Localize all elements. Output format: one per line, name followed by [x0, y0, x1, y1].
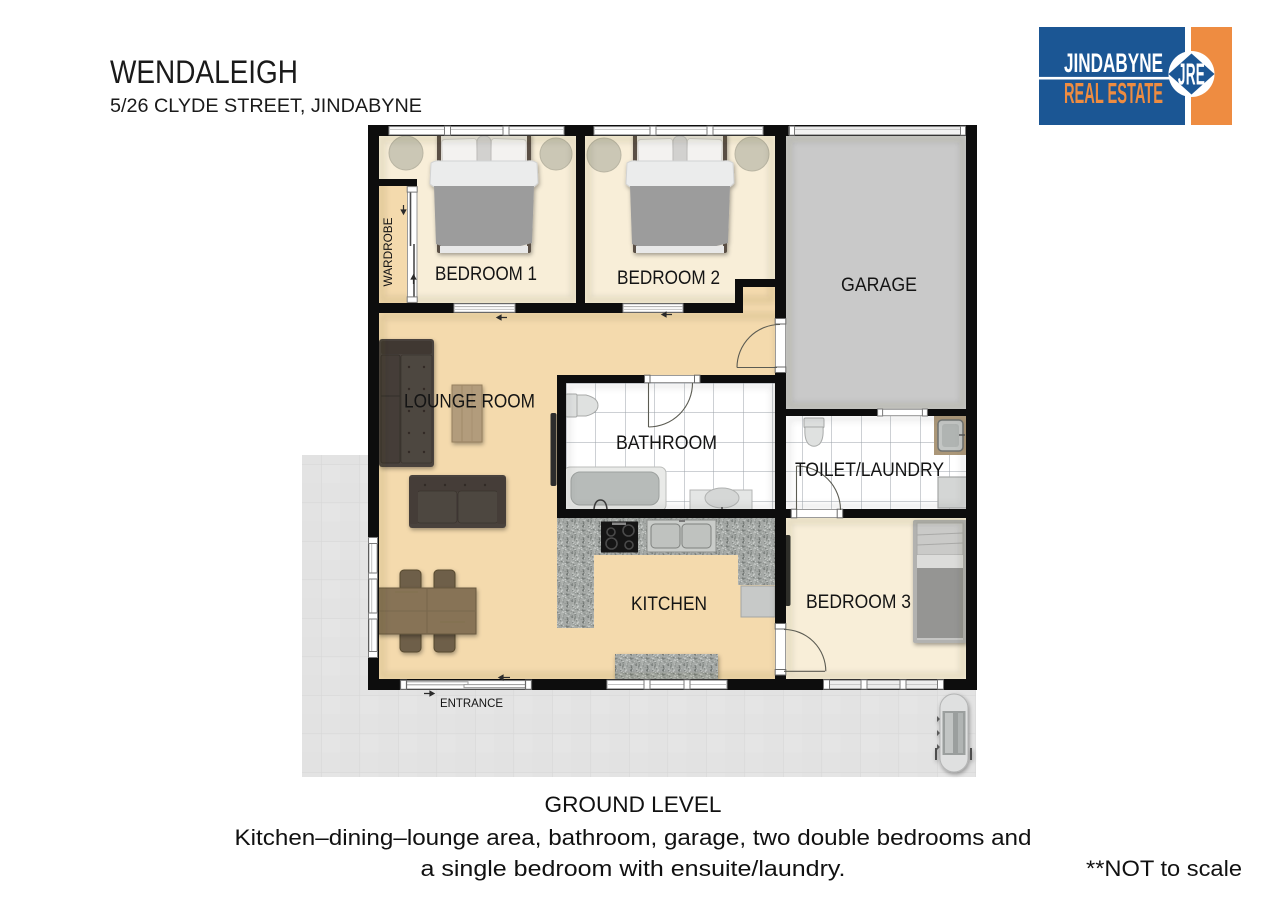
- svg-text:JINDABYNE: JINDABYNE: [1064, 48, 1163, 78]
- svg-text:LOUNGE ROOM: LOUNGE ROOM: [404, 392, 535, 413]
- svg-text:Kitchen–dining–lounge area, ba: Kitchen–dining–lounge area, bathroom, ga…: [235, 825, 1032, 850]
- svg-text:BEDROOM 3: BEDROOM 3: [806, 592, 911, 613]
- svg-text:JRE: JRE: [1178, 57, 1205, 92]
- svg-text:a single bedroom with ensuite/: a single bedroom with ensuite/laundry.: [421, 856, 846, 881]
- svg-text:BATHROOM: BATHROOM: [616, 433, 717, 454]
- svg-text:REAL ESTATE: REAL ESTATE: [1064, 78, 1163, 110]
- svg-text:GARAGE: GARAGE: [841, 275, 917, 296]
- svg-text:WENDALEIGH: WENDALEIGH: [110, 54, 298, 90]
- svg-text:**NOT to scale: **NOT to scale: [1086, 856, 1242, 881]
- svg-text:GROUND LEVEL: GROUND LEVEL: [545, 792, 722, 817]
- svg-text:ENTRANCE: ENTRANCE: [440, 696, 503, 710]
- svg-text:TOILET/LAUNDRY: TOILET/LAUNDRY: [795, 460, 944, 481]
- svg-text:KITCHEN: KITCHEN: [631, 594, 707, 615]
- svg-text:WARDROBE: WARDROBE: [383, 217, 395, 286]
- svg-text:BEDROOM 1: BEDROOM 1: [435, 264, 537, 285]
- svg-text:5/26 CLYDE STREET, JINDABYNE: 5/26 CLYDE STREET, JINDABYNE: [110, 96, 422, 117]
- svg-text:BEDROOM 2: BEDROOM 2: [617, 268, 720, 289]
